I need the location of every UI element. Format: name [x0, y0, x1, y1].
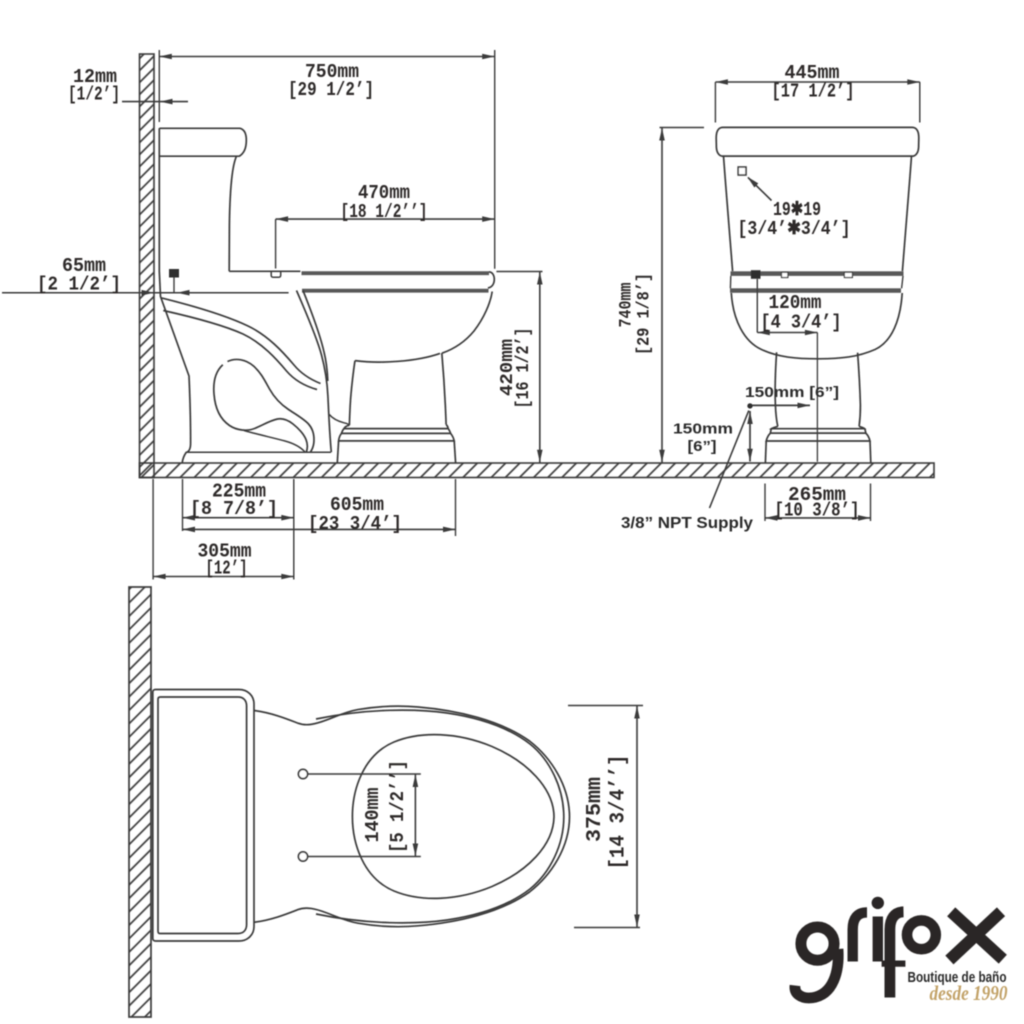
- svg-text:150mm: 150mm: [673, 421, 733, 438]
- svg-text:[16 1/2’]: [16 1/2’]: [514, 328, 534, 409]
- svg-text:[10 3/8’]: [10 3/8’]: [775, 500, 860, 522]
- svg-text:150mm [6”]: 150mm [6”]: [745, 384, 839, 401]
- svg-text:140mm: 140mm: [362, 788, 384, 843]
- svg-text:[17 1/2’]: [17 1/2’]: [772, 81, 855, 103]
- svg-text:[18 1/2’’]: [18 1/2’’]: [341, 201, 428, 223]
- svg-text:[5 1/2’’]: [5 1/2’’]: [387, 760, 409, 853]
- svg-text:[2 1/2’]: [2 1/2’]: [37, 274, 121, 296]
- svg-text:[8 7/8’]: [8 7/8’]: [190, 498, 278, 520]
- svg-text:desde 1990: desde 1990: [930, 981, 1008, 1005]
- svg-text:[12’]: [12’]: [206, 558, 248, 580]
- svg-text:[4 3/4’]: [4 3/4’]: [761, 312, 842, 334]
- svg-text:[14 3/4’’]: [14 3/4’’]: [608, 755, 631, 870]
- svg-text:375mm: 375mm: [584, 777, 607, 842]
- svg-text:[1/2’]: [1/2’]: [68, 84, 120, 106]
- svg-text:[3/4’✱3/4’]: [3/4’✱3/4’]: [738, 218, 851, 240]
- svg-text:740mm: 740mm: [617, 283, 637, 328]
- svg-text:3/8” NPT Supply: 3/8” NPT Supply: [621, 515, 753, 532]
- svg-text:[29 1/8’]: [29 1/8’]: [635, 273, 655, 355]
- svg-text:[23 3/4’]: [23 3/4’]: [308, 513, 402, 535]
- svg-text:[29 1/2’]: [29 1/2’]: [288, 79, 374, 101]
- svg-text:[6”]: [6”]: [688, 438, 717, 455]
